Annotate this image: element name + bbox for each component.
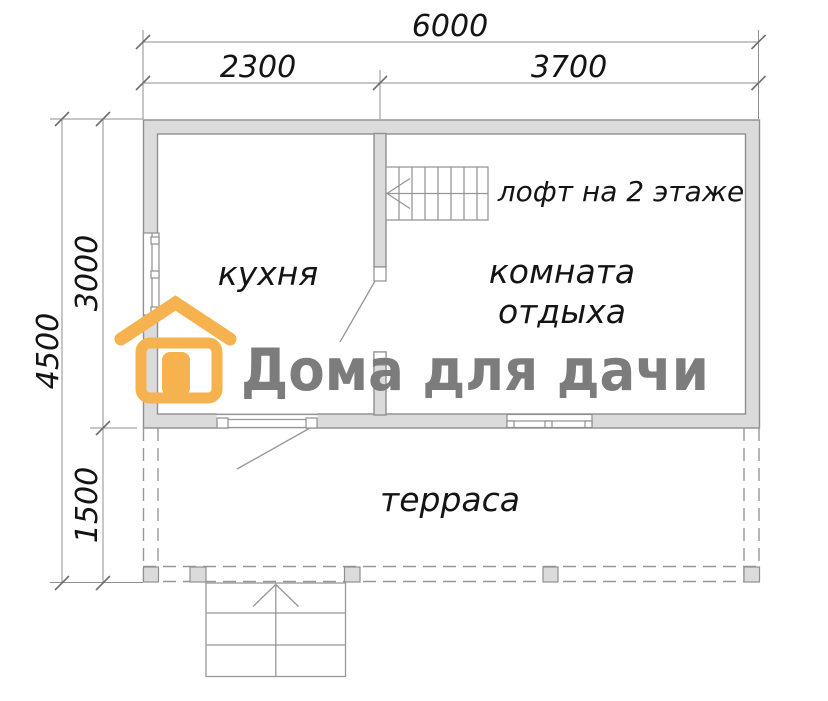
dim-1500: 1500 (70, 467, 105, 543)
window-bottom (507, 415, 592, 428)
loft-stairs (386, 167, 488, 220)
dim-2300: 2300 (220, 50, 296, 85)
window-left (144, 233, 160, 315)
door-jamb (306, 418, 317, 428)
logo-text: Дома для дачи (241, 336, 709, 404)
door-jamb (217, 418, 228, 428)
left-dimensions: 4500 3000 1500 (31, 112, 143, 590)
dim-6000: 6000 (412, 9, 488, 44)
dim-4500: 4500 (31, 313, 66, 389)
terrace-door (217, 414, 318, 469)
door-jamb-cap (374, 267, 386, 281)
label-lounge-2: отдыха (498, 292, 626, 331)
label-kitchen: кухня (218, 254, 318, 293)
dim-3700: 3700 (531, 50, 607, 85)
entrance-steps (206, 583, 346, 677)
dim-3000: 3000 (70, 235, 105, 311)
partition-wall-upper (374, 134, 386, 268)
floor-plan-canvas: 6000 2300 3700 4500 3000 1500 (0, 0, 828, 701)
label-lounge-1: комната (489, 252, 635, 291)
door-swing-line (237, 428, 310, 469)
terrace-posts (144, 567, 760, 582)
label-loft: лофт на 2 этаже (497, 175, 745, 208)
house-door (162, 352, 190, 396)
top-dimensions: 6000 2300 3700 (136, 9, 766, 119)
label-terrace: терраса (380, 480, 520, 519)
